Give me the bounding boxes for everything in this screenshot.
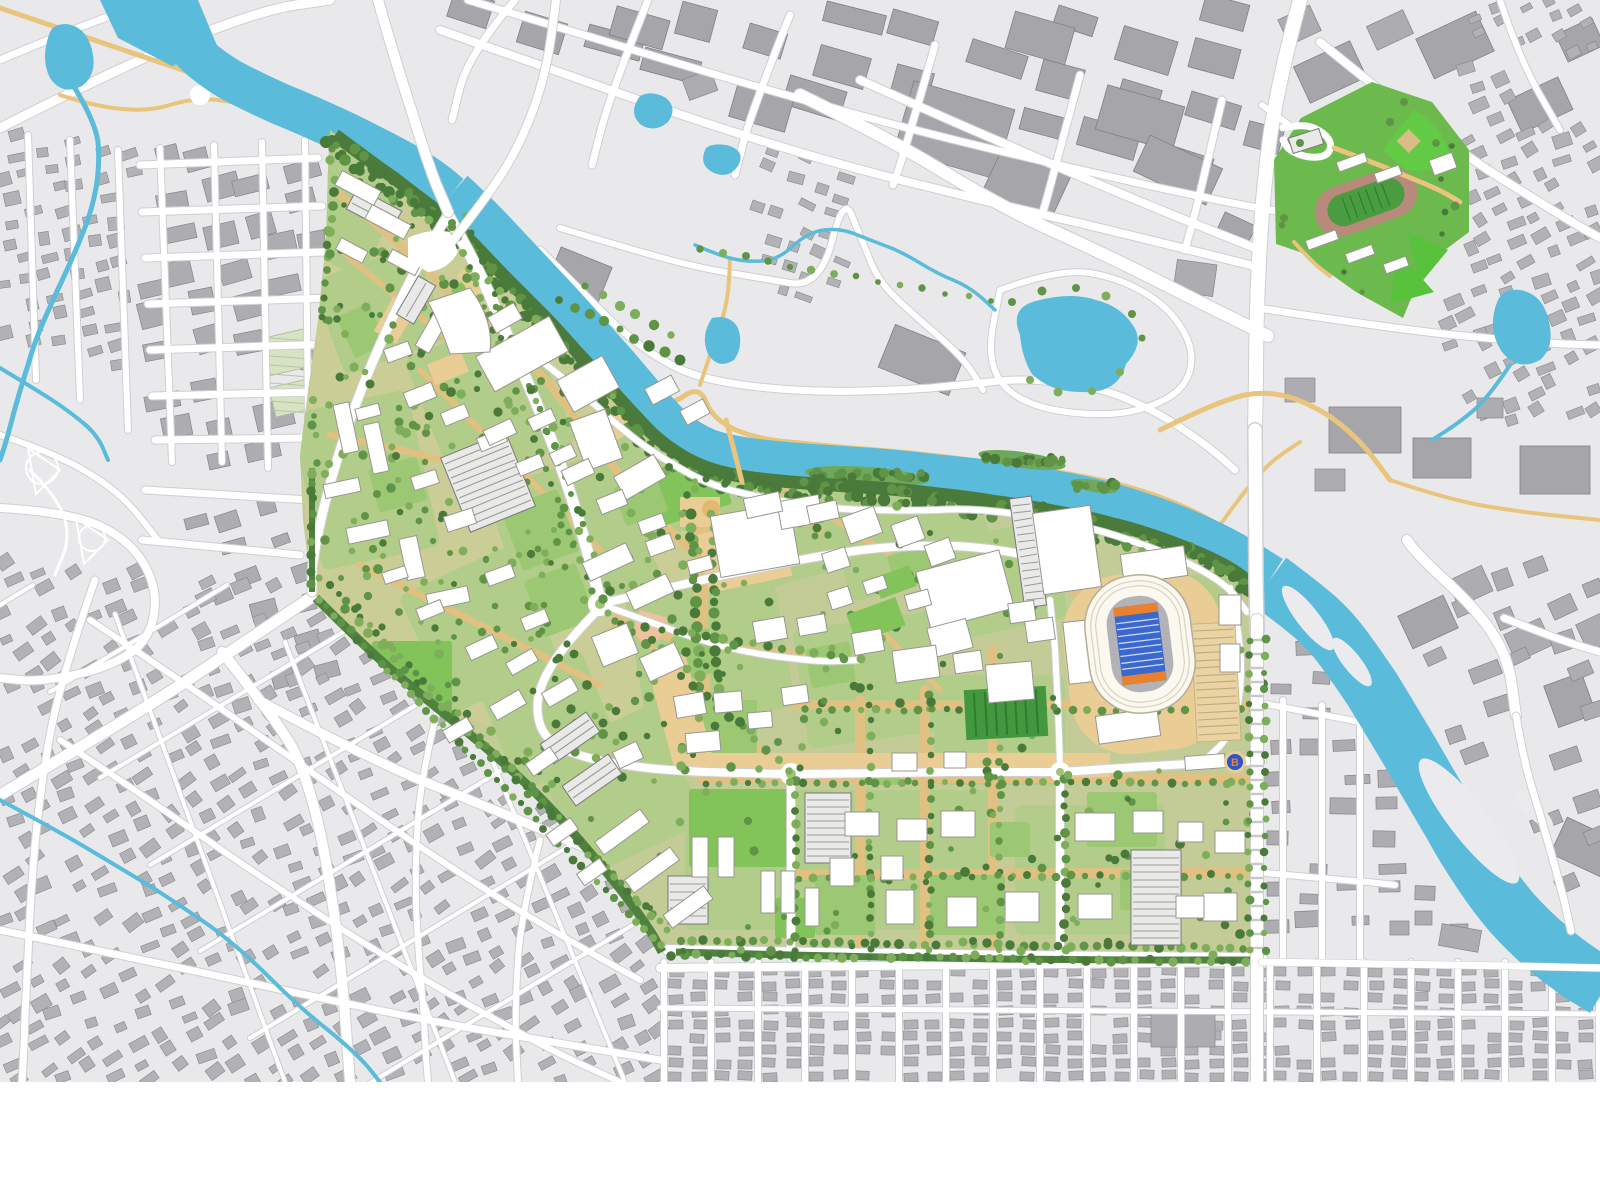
svg-text:B: B xyxy=(1231,757,1239,769)
